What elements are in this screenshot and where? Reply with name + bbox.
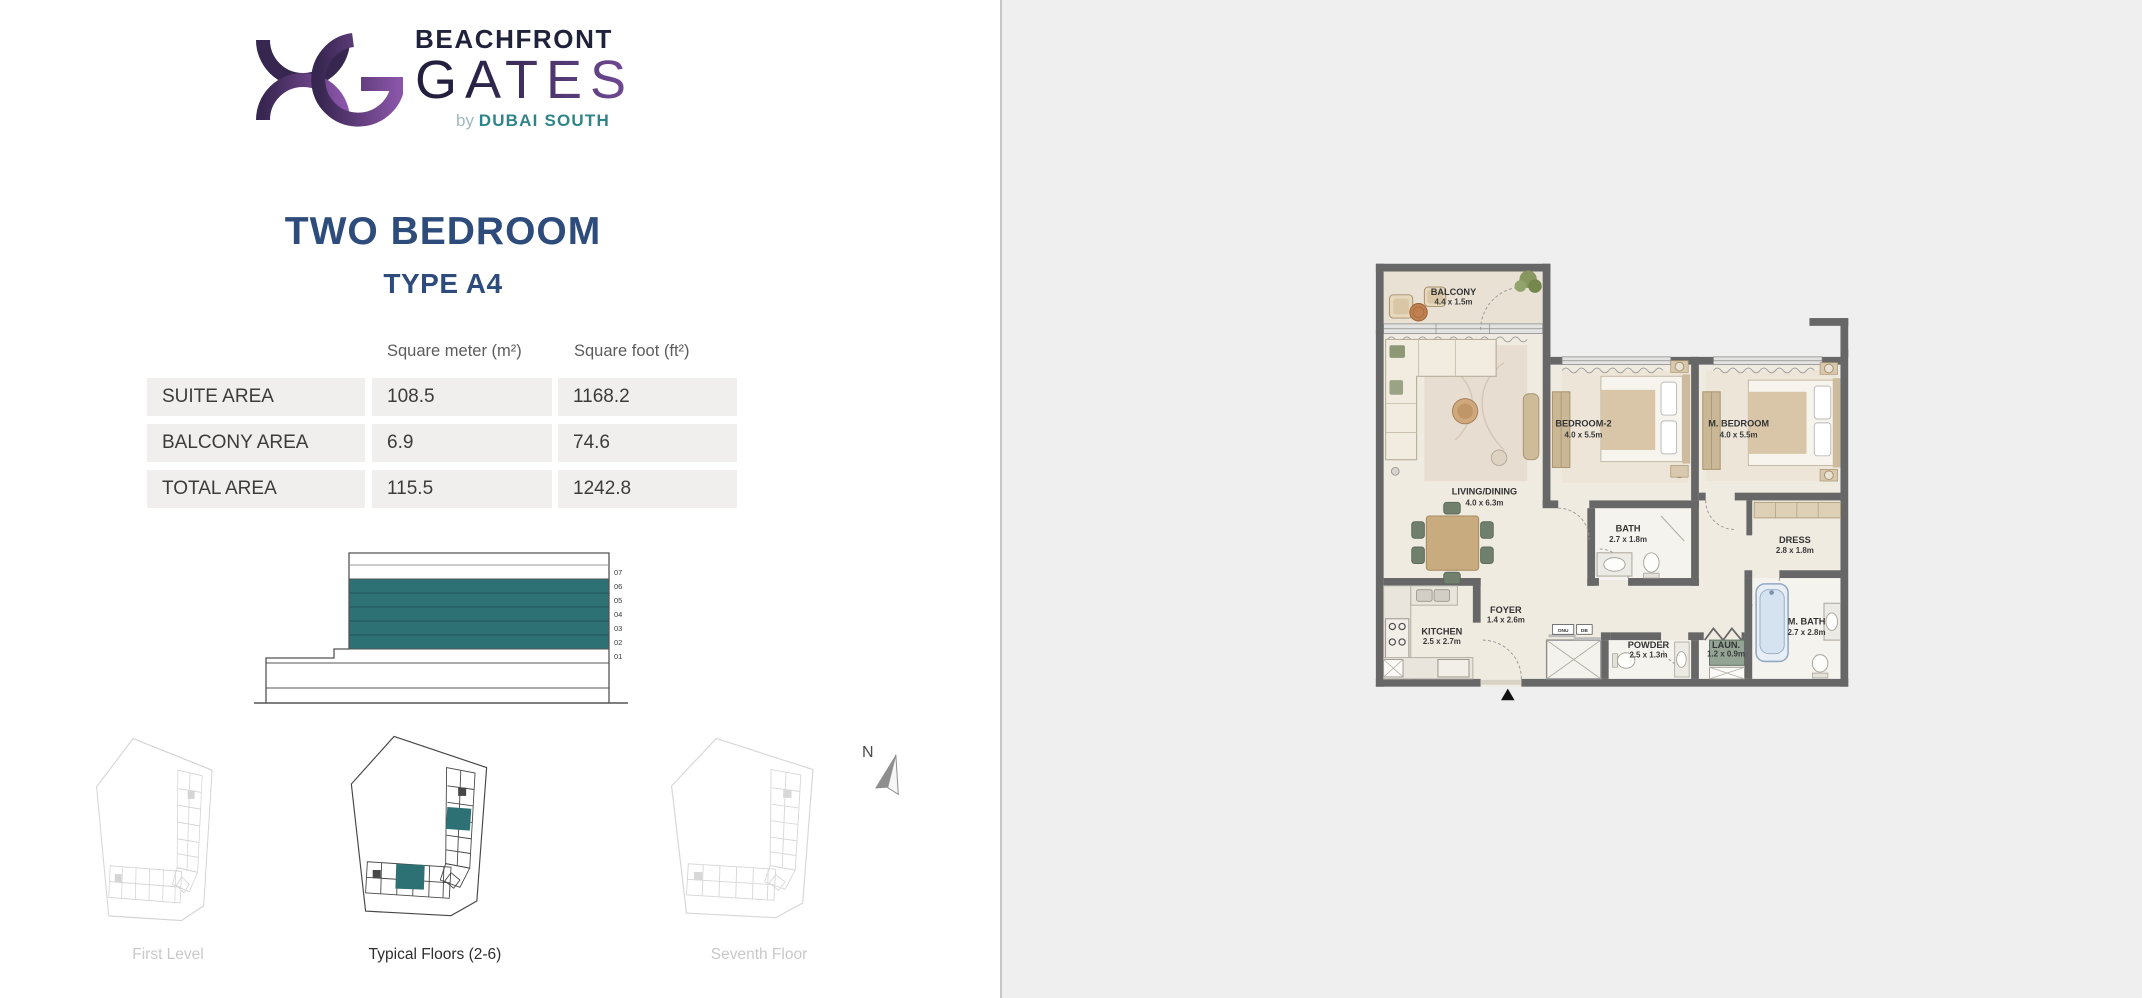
room-dim: 2.8 x 1.8m: [1776, 546, 1814, 555]
brochure-right-panel: ONU DB BALCONY 4.4 x 1.5m LIVING/DINING …: [1000, 0, 2142, 998]
area-sqft-value: 1168.2: [558, 378, 737, 416]
floor-label: 01: [614, 652, 622, 661]
room-name: LIVING/DINING: [1452, 487, 1517, 497]
area-label: TOTAL AREA: [147, 470, 365, 508]
north-arrow-icon: [874, 750, 908, 798]
table-row: TOTAL AREA 115.5 1242.8: [147, 470, 737, 508]
utility-label-db: DB: [1581, 628, 1588, 634]
thumbnail-label-seventh-floor: Seventh Floor: [666, 946, 852, 964]
brand-name-line2: GATES: [415, 49, 651, 111]
dress-wardrobe: [1754, 502, 1840, 518]
site-plan-icon: [666, 733, 852, 925]
floorplan-thumbnail-seventh-floor[interactable]: [666, 733, 852, 930]
brand-tagline: by DUBAI SOUTH: [415, 111, 651, 131]
brand-text: BEACHFRONT GATES by DUBAI SOUTH: [415, 24, 651, 131]
brochure-left-panel: BEACHFRONT GATES by DUBAI SOUTH TWO BEDR…: [0, 0, 1000, 998]
utility-label-onu: ONU: [1558, 628, 1569, 634]
floor-label: 05: [614, 596, 622, 605]
brand-tagline-owner: DUBAI SOUTH: [479, 111, 610, 130]
elevation-floor-labels: 07 06 05 04 03 02 01: [614, 568, 622, 661]
room-dim: 2.7 x 1.8m: [1609, 535, 1647, 544]
room-name: BEDROOM-2: [1555, 419, 1611, 429]
brand-tagline-by: by: [456, 111, 474, 130]
area-label: SUITE AREA: [147, 378, 365, 416]
room-name: M. BEDROOM: [1708, 419, 1769, 429]
room-dim: 1.4 x 2.6m: [1487, 616, 1525, 625]
highlighted-floors: [349, 579, 609, 649]
table-row: BALCONY AREA 6.9 74.6: [147, 424, 737, 462]
col-header-sqm: Square meter (m²): [387, 342, 522, 361]
room-name: BATH: [1616, 523, 1641, 533]
page-subtitle: TYPE A4: [0, 268, 886, 300]
compass-label: N: [862, 744, 874, 762]
site-plan-icon: [92, 733, 244, 928]
entrance-arrow-icon: [1501, 689, 1515, 701]
page-title: TWO BEDROOM: [0, 210, 886, 254]
room-dim: 1.2 x 0.9m: [1707, 650, 1745, 659]
room-name: POWDER: [1628, 640, 1670, 650]
floor-label: 06: [614, 582, 622, 591]
room-dim: 2.7 x 2.8m: [1788, 628, 1826, 637]
area-sqm-value: 6.9: [372, 424, 552, 462]
room-dim: 2.5 x 1.3m: [1629, 651, 1667, 660]
floor-label: 04: [614, 610, 622, 619]
elevation-outline: [254, 553, 628, 703]
room-dim: 4.0 x 6.3m: [1466, 498, 1504, 507]
area-label: BALCONY AREA: [147, 424, 365, 462]
room-dim: 2.5 x 2.7m: [1423, 637, 1461, 646]
thumbnail-label-first-level: First Level: [92, 946, 244, 964]
table-row: SUITE AREA 108.5 1168.2: [147, 378, 737, 416]
floor-label: 07: [614, 568, 622, 577]
floor-label: 02: [614, 638, 622, 647]
floorplan-thumbnail-typical-floors[interactable]: [346, 731, 524, 928]
area-sqft-value: 74.6: [558, 424, 737, 462]
area-sqm-value: 108.5: [372, 378, 552, 416]
building-elevation-diagram: 07 06 05 04 03 02 01: [252, 546, 630, 708]
area-sqft-value: 1242.8: [558, 470, 737, 508]
room-dim: 4.0 x 5.5m: [1720, 430, 1758, 439]
area-table-header: Square meter (m²) Square foot (ft²): [147, 342, 737, 370]
room-name: FOYER: [1490, 605, 1522, 615]
room-dim: 4.0 x 5.5m: [1564, 430, 1602, 439]
unit-floorplan: ONU DB BALCONY 4.4 x 1.5m LIVING/DINING …: [1368, 256, 1892, 708]
area-sqm-value: 115.5: [372, 470, 552, 508]
brand-logo: BEACHFRONT GATES by DUBAI SOUTH: [253, 22, 653, 146]
site-plan-icon: [346, 731, 524, 923]
highlighted-unit: [395, 864, 424, 890]
room-name: BALCONY: [1431, 287, 1477, 297]
room-name: KITCHEN: [1421, 626, 1462, 636]
floorplan-thumbnail-first-level[interactable]: [92, 733, 244, 933]
room-dim: 4.4 x 1.5m: [1434, 297, 1472, 306]
room-name: LAUN.: [1712, 640, 1740, 650]
north-compass: N: [862, 742, 922, 802]
room-name: M. BATH: [1788, 617, 1826, 627]
floor-label: 03: [614, 624, 622, 633]
thumbnail-label-typical-floors: Typical Floors (2-6): [346, 946, 524, 964]
brand-monogram-icon: [253, 24, 403, 136]
col-header-sqft: Square foot (ft²): [574, 342, 690, 361]
area-table: Square meter (m²) Square foot (ft²) SUIT…: [147, 342, 737, 508]
highlighted-unit: [446, 807, 471, 831]
room-name: DRESS: [1779, 535, 1811, 545]
